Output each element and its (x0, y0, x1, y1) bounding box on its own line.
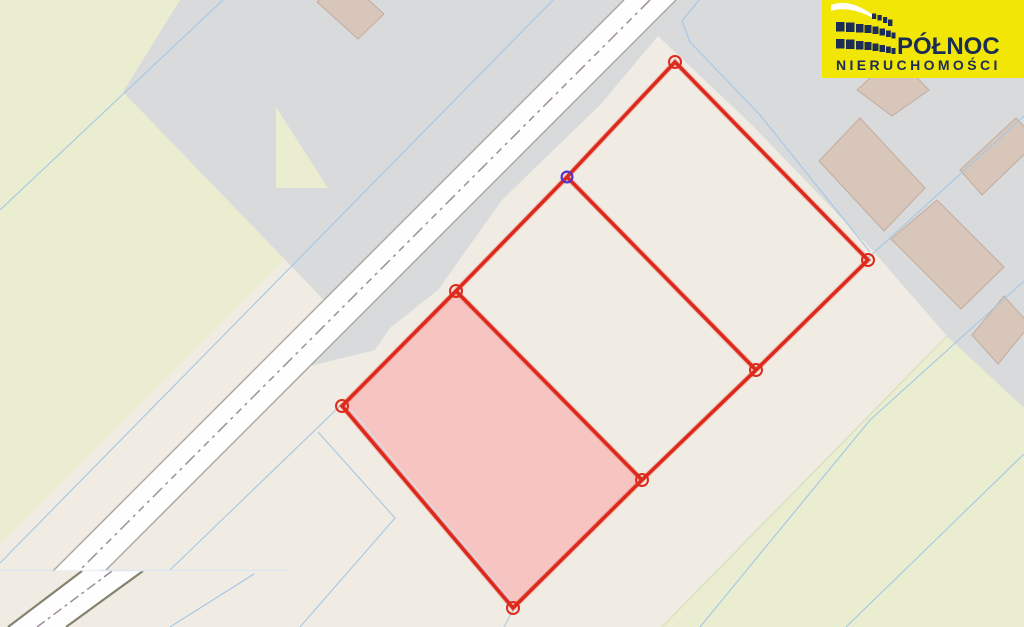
svg-text:PÓŁNOC: PÓŁNOC (897, 32, 1000, 60)
svg-text:NIERUCHOMOŚCI: NIERUCHOMOŚCI (836, 56, 1001, 73)
